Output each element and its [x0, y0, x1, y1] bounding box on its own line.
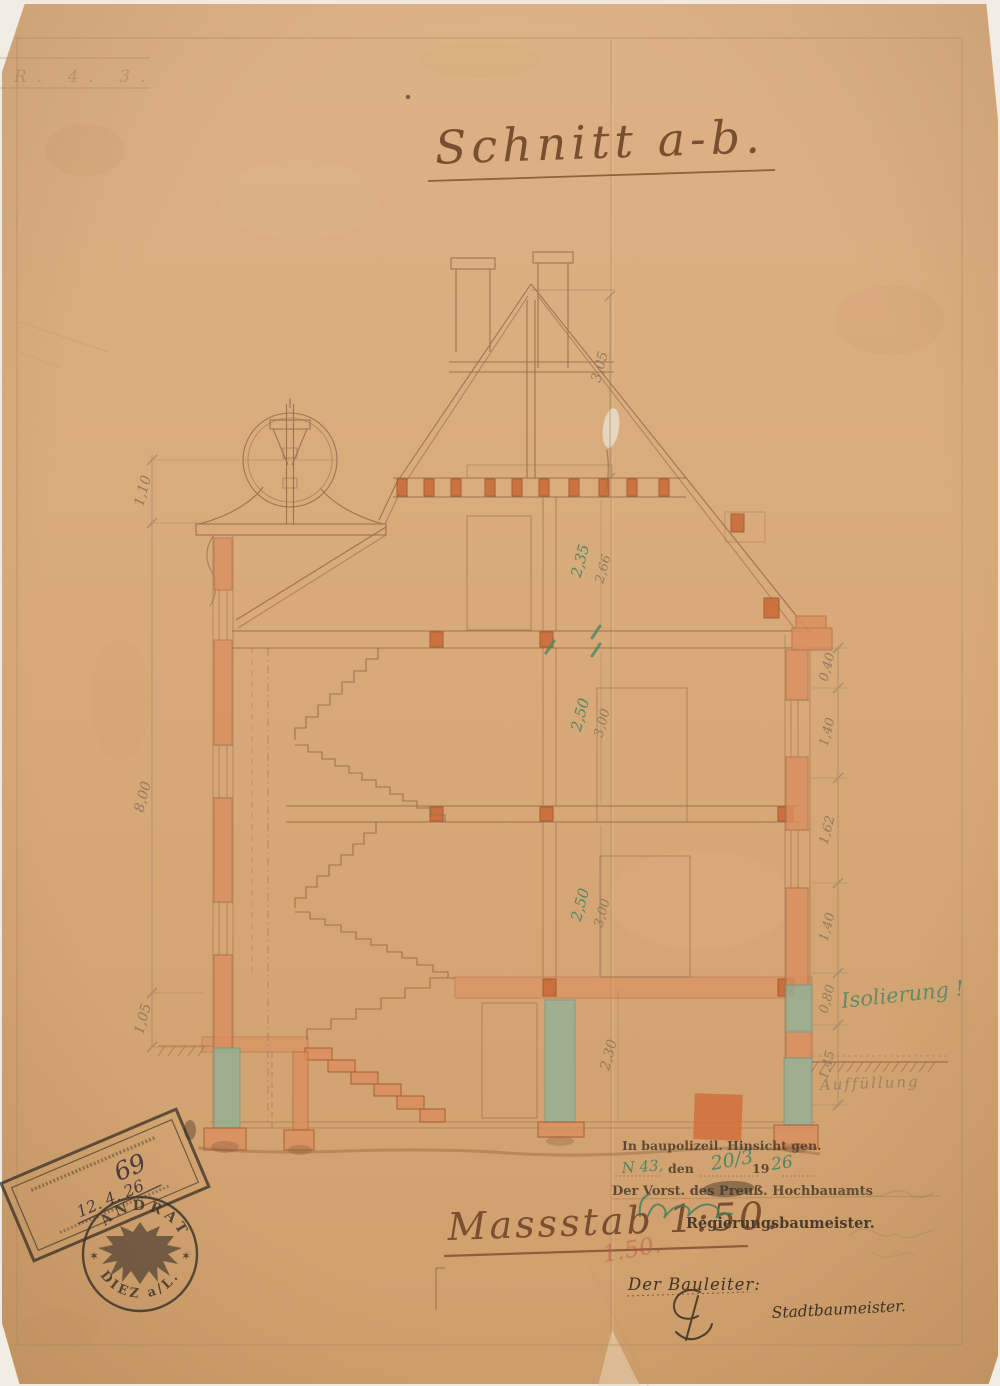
approval-title: Regierungsbaumeister.	[686, 1215, 875, 1232]
fill-note: Auffüllung	[818, 1073, 920, 1095]
stamp-star-right: ✶	[181, 1249, 191, 1263]
approval-year: 26	[769, 1152, 794, 1175]
paper-background	[0, 0, 1000, 1386]
builder-label: Der Bauleiter:	[627, 1275, 761, 1294]
corner-note: R. 4. 3.	[13, 67, 155, 87]
approval-19: 19	[752, 1161, 769, 1176]
approval-ref: N 43,	[620, 1156, 664, 1177]
scanned-drawing-sheet: R. 4. 3. Schnitt a-b.	[0, 0, 1000, 1386]
stamp-star-left: ✶	[89, 1249, 99, 1263]
approval-den: den	[668, 1161, 694, 1176]
title-text: Schnitt a-b.	[434, 109, 766, 174]
